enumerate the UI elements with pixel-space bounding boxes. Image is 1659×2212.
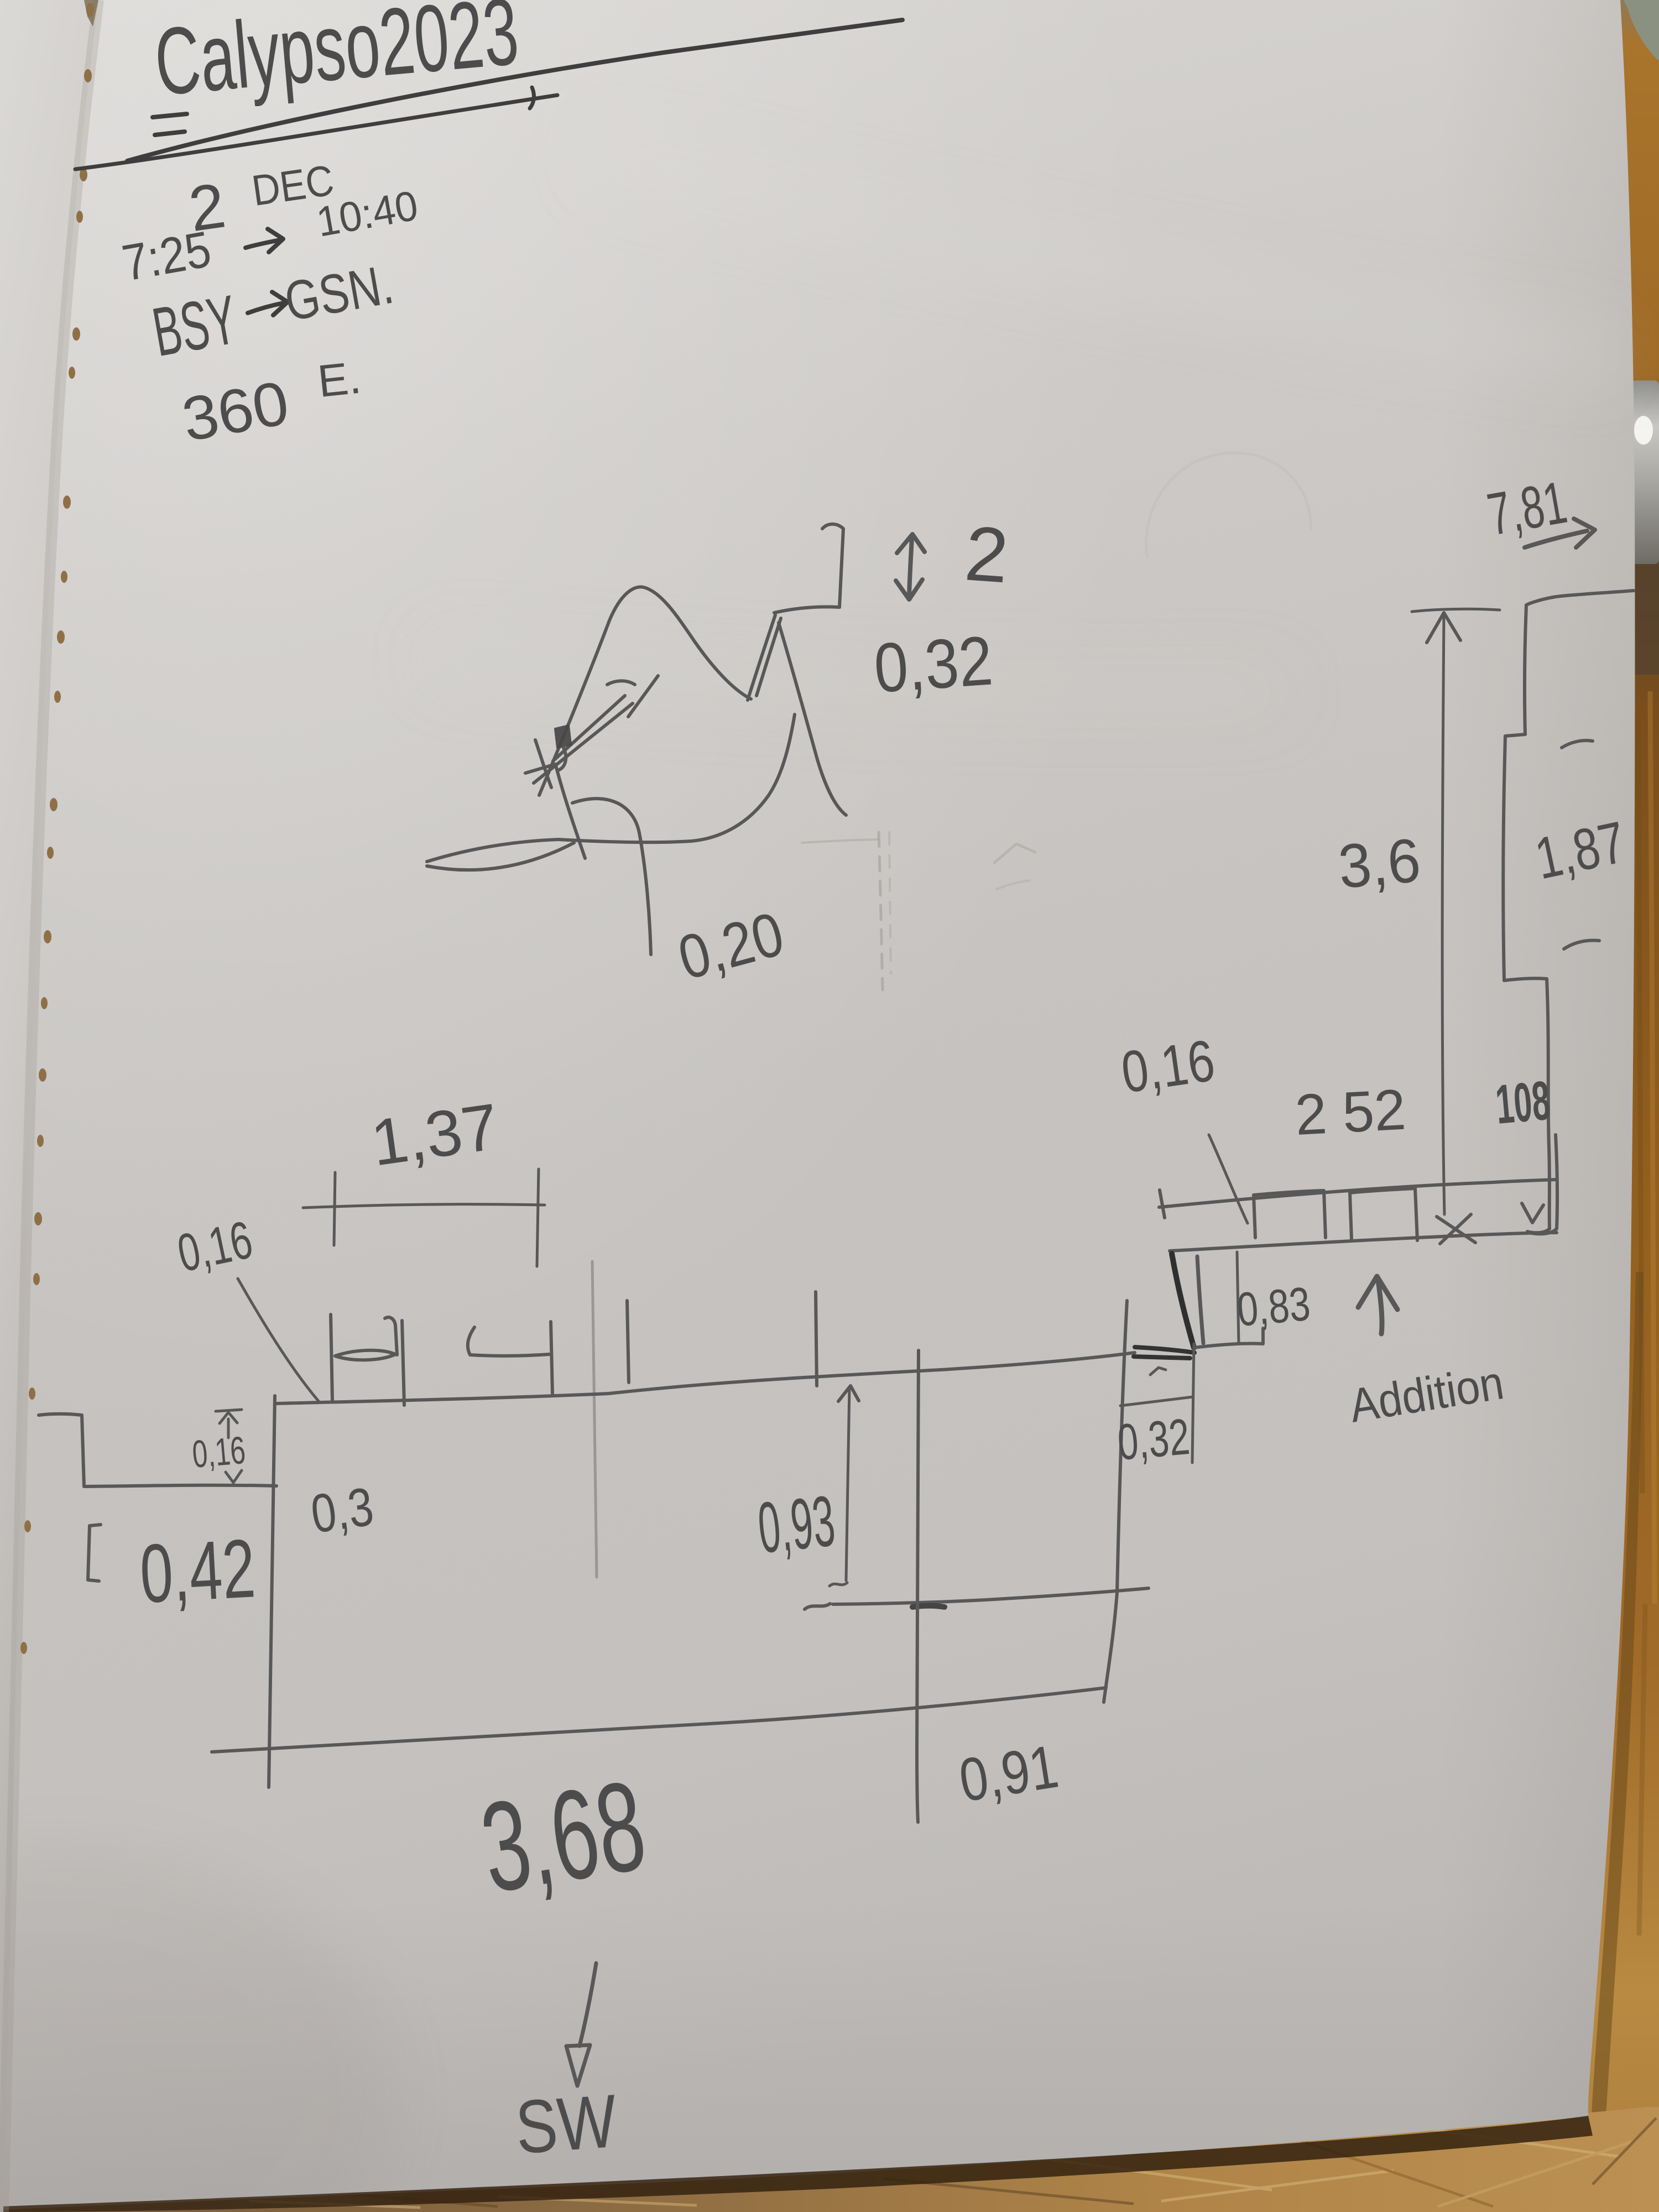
svg-text:0,83: 0,83 <box>1235 1277 1312 1337</box>
svg-text:0,42: 0,42 <box>138 1521 258 1620</box>
svg-text:E.: E. <box>315 352 363 407</box>
svg-text:0,32: 0,32 <box>1115 1408 1192 1471</box>
svg-text:0,93: 0,93 <box>754 1480 839 1568</box>
svg-text:0,16: 0,16 <box>1118 1028 1219 1105</box>
svg-text:2: 2 <box>962 509 1011 599</box>
svg-text:108: 108 <box>1493 1070 1552 1136</box>
svg-text:SW: SW <box>513 2079 619 2169</box>
svg-text:3,68: 3,68 <box>472 1754 654 1919</box>
svg-text:BSY: BSY <box>147 281 242 371</box>
svg-text:2 52: 2 52 <box>1293 1078 1407 1147</box>
svg-text:0,16: 0,16 <box>191 1428 247 1476</box>
svg-text:0,3: 0,3 <box>307 1475 377 1545</box>
svg-text:7,81: 7,81 <box>1483 468 1572 548</box>
svg-text:3,6: 3,6 <box>1335 825 1423 901</box>
svg-text:0,32: 0,32 <box>872 621 995 707</box>
